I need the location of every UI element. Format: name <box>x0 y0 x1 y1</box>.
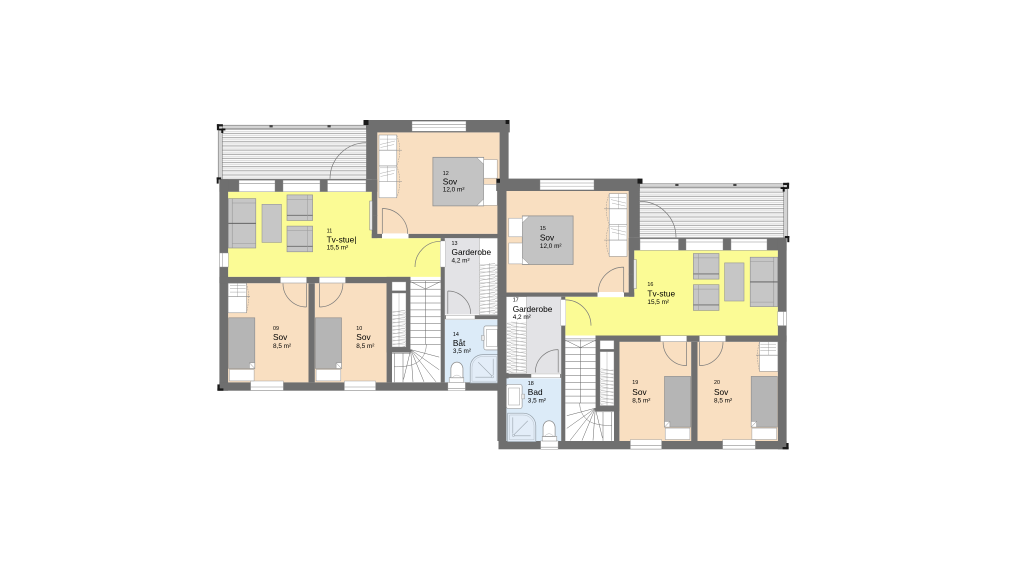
svg-text:12,0 m²: 12,0 m² <box>540 243 562 250</box>
svg-text:8,5 m²: 8,5 m² <box>273 343 291 350</box>
svg-text:8,5 m²: 8,5 m² <box>632 398 650 405</box>
svg-text:4,2 m²: 4,2 m² <box>452 257 470 264</box>
svg-text:17: 17 <box>513 297 519 303</box>
svg-text:Sov: Sov <box>356 332 371 342</box>
svg-text:8,5 m²: 8,5 m² <box>714 398 732 405</box>
svg-text:15,5 m²: 15,5 m² <box>647 299 669 306</box>
svg-text:11: 11 <box>327 228 333 234</box>
svg-text:Garderobe: Garderobe <box>513 304 553 314</box>
svg-text:Bad: Bad <box>528 387 543 397</box>
svg-text:Tv-stue: Tv-stue <box>647 289 675 299</box>
svg-text:Sov: Sov <box>714 387 729 397</box>
svg-text:8,5 m²: 8,5 m² <box>356 343 374 350</box>
svg-text:15: 15 <box>540 226 546 232</box>
svg-text:Garderobe: Garderobe <box>452 247 492 257</box>
svg-text:14: 14 <box>453 332 459 338</box>
svg-text:20: 20 <box>714 380 720 386</box>
svg-text:Sov: Sov <box>632 387 647 397</box>
svg-text:3,5 m²: 3,5 m² <box>528 398 546 405</box>
svg-text:19: 19 <box>632 380 638 386</box>
svg-text:Sov: Sov <box>443 176 458 186</box>
svg-text:Sov: Sov <box>273 332 288 342</box>
svg-text:3,5 m²: 3,5 m² <box>453 348 471 355</box>
svg-text:4,2 m²: 4,2 m² <box>513 314 531 321</box>
svg-text:Sov: Sov <box>540 233 555 243</box>
svg-text:Tv-stue|: Tv-stue| <box>327 234 357 244</box>
svg-text:16: 16 <box>647 282 653 288</box>
svg-text:Båt: Båt <box>453 338 466 348</box>
svg-text:13: 13 <box>452 241 458 247</box>
svg-text:15,5 m²: 15,5 m² <box>327 245 349 252</box>
svg-text:12,0 m²: 12,0 m² <box>443 187 465 194</box>
svg-text:18: 18 <box>528 381 534 387</box>
